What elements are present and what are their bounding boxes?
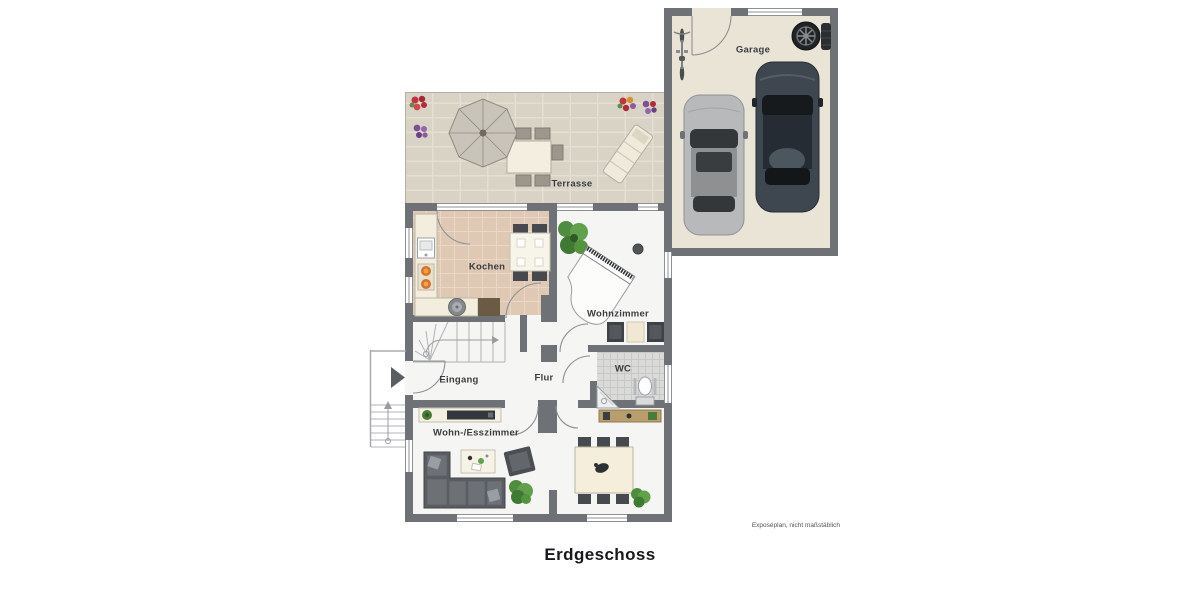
wall-segment: [413, 400, 505, 408]
room-label-flur: Flur: [535, 373, 554, 384]
entrance-arrow-icon: [391, 367, 405, 388]
room-label-wc: WC: [615, 364, 631, 375]
wall-segment: [520, 315, 527, 352]
wall-segment: [538, 400, 557, 433]
room-label-garage: Garage: [736, 45, 770, 56]
window: [437, 203, 527, 211]
entrance-steps: [370, 350, 406, 447]
wall-segment: [413, 315, 505, 322]
door-opening: [692, 8, 731, 16]
wall-segment: [664, 8, 672, 256]
wall-segment: [588, 345, 672, 352]
terrace-floor: [405, 92, 666, 204]
wall-segment: [549, 490, 557, 514]
room-label-terrasse: Terrasse: [552, 179, 593, 190]
window: [557, 203, 593, 211]
room-label-eingang: Eingang: [439, 375, 478, 386]
wall-segment: [578, 400, 672, 408]
plan-title: Erdgeschoss: [0, 545, 1200, 565]
door-opening: [405, 361, 413, 395]
floor-plan: Terrasse Garage Kochen Wohnzimmer WC Ein…: [0, 0, 1200, 600]
wall-segment: [830, 8, 838, 256]
window: [457, 514, 513, 522]
room-label-kochen: Kochen: [469, 262, 505, 273]
wall-segment: [541, 345, 557, 362]
wall-segment: [672, 248, 838, 256]
window: [638, 203, 658, 211]
window: [405, 440, 413, 472]
room-label-wohnzimmer: Wohnzimmer: [587, 309, 649, 320]
window: [587, 514, 627, 522]
wall-segment: [405, 514, 672, 522]
window: [748, 8, 802, 16]
window: [664, 252, 672, 278]
window: [405, 228, 413, 258]
window: [405, 277, 413, 303]
wall-segment: [541, 295, 557, 322]
plan-footnote: Exposéplan, nicht maßstäblich: [700, 522, 840, 529]
wall-segment: [549, 211, 557, 295]
room-label-wohn-esszimmer: Wohn-/Esszimmer: [433, 428, 519, 439]
window: [664, 365, 672, 403]
